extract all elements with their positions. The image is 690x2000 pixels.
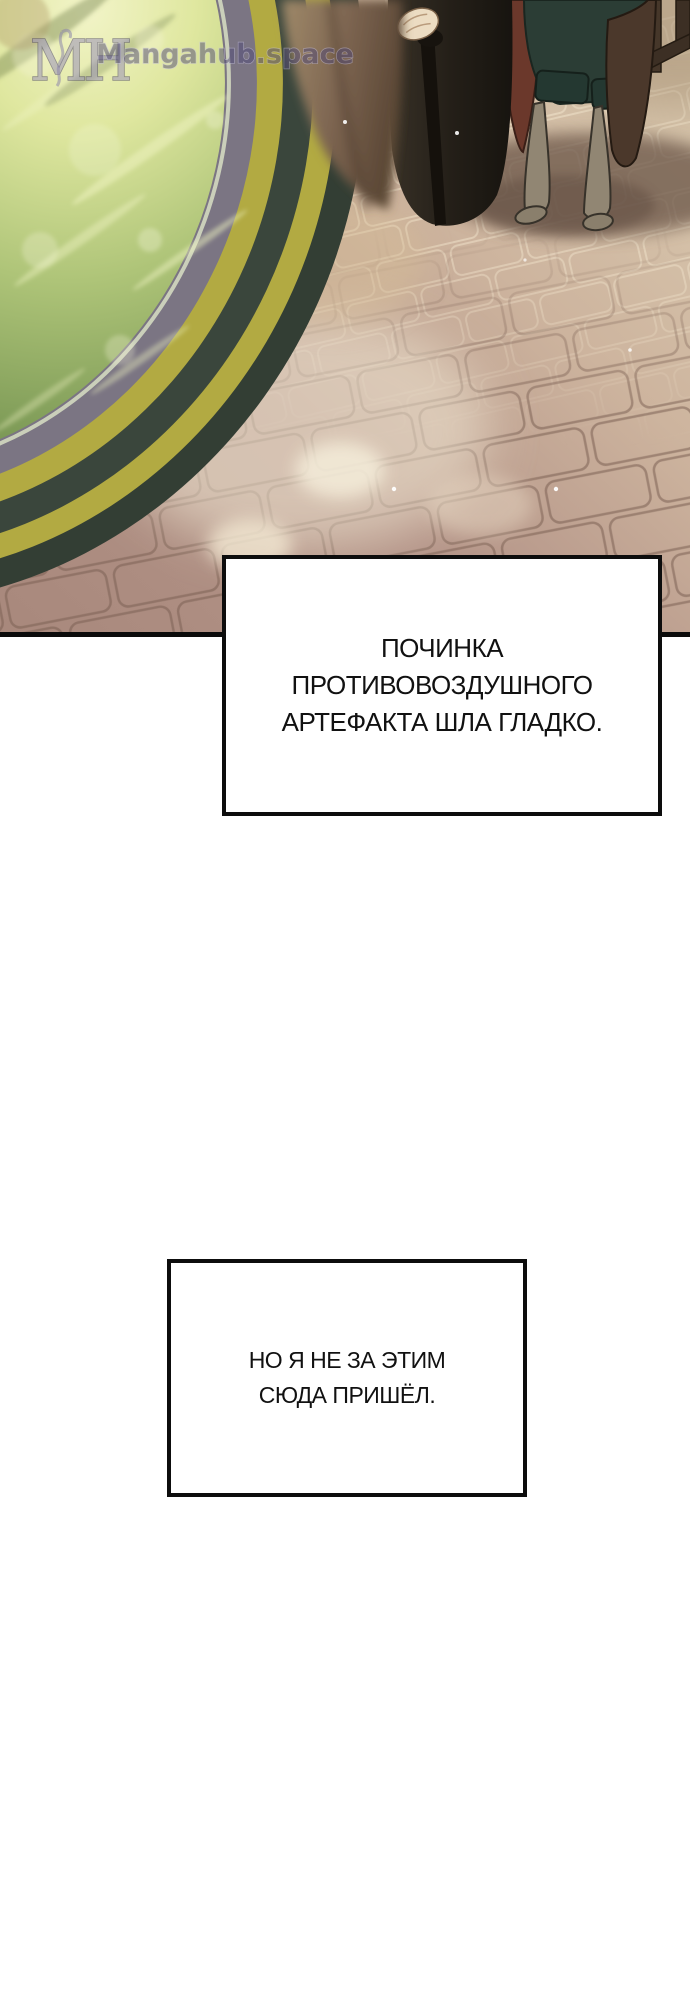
- caption-1-line-3: АРТЕФАКТА ШЛА ГЛАДКО.: [282, 704, 603, 741]
- caption-1-line-1: ПОЧИНКА: [381, 630, 503, 667]
- watermark-site-text: Mangahub.space: [96, 39, 354, 70]
- caption-box-2: НО Я НЕ ЗА ЭТИМ СЮДА ПРИШЁЛ.: [167, 1259, 527, 1497]
- caption-2-line-2: СЮДА ПРИШЁЛ.: [259, 1378, 435, 1413]
- manga-page: MH Mangahub.space ПОЧИНКА ПРОТИВОВОЗДУШН…: [0, 0, 690, 2000]
- caption-box-1: ПОЧИНКА ПРОТИВОВОЗДУШНОГО АРТЕФАКТА ШЛА …: [222, 555, 662, 816]
- robed-figure: [388, 0, 512, 226]
- caption-2-line-1: НО Я НЕ ЗА ЭТИМ: [249, 1343, 446, 1378]
- artwork-panel: MH Mangahub.space: [0, 0, 690, 637]
- artwork-scene: MH Mangahub.space: [0, 0, 690, 637]
- caption-1-line-2: ПРОТИВОВОЗДУШНОГО: [292, 667, 593, 704]
